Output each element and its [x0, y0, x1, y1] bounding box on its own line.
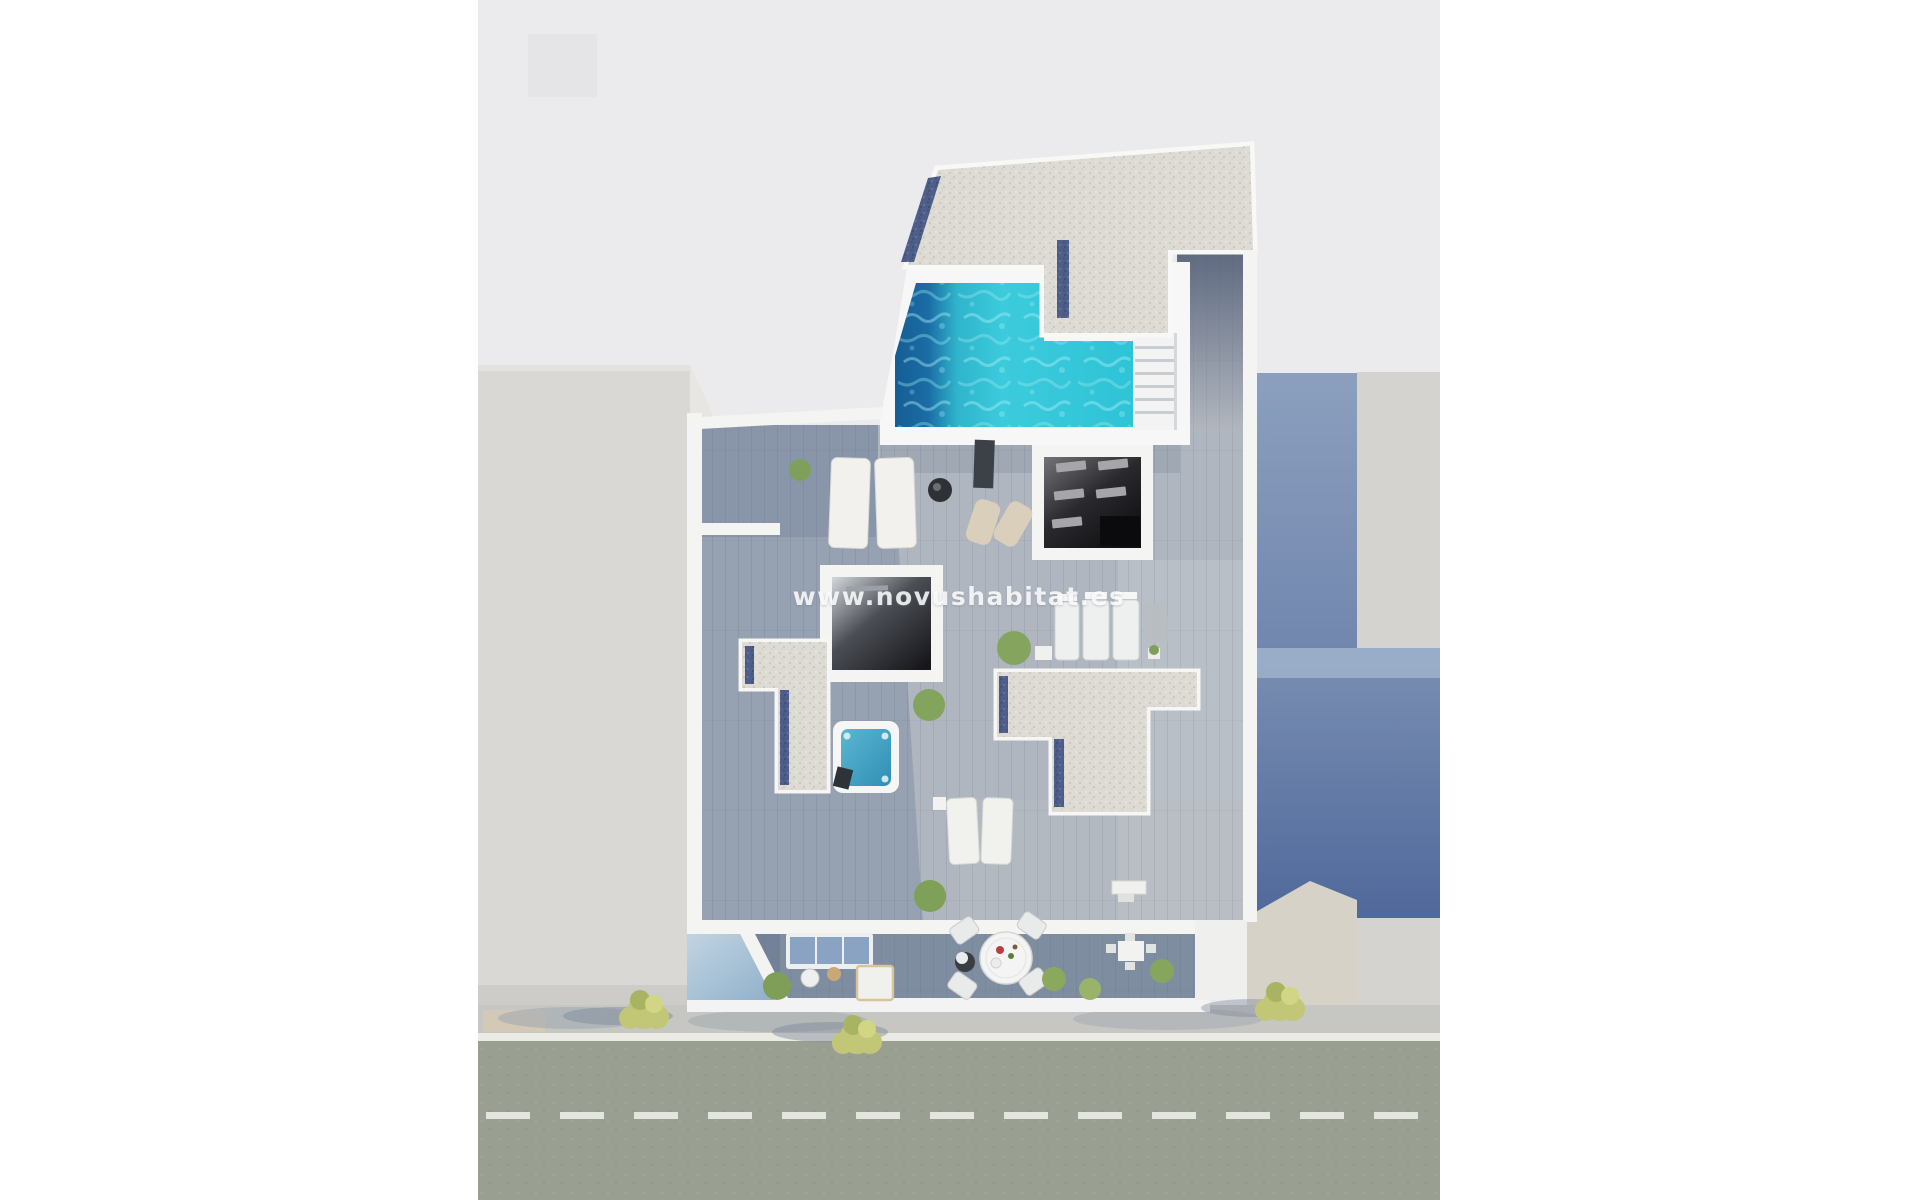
left-building-roof	[478, 365, 690, 1008]
side-table	[928, 478, 952, 502]
coffee-table	[801, 969, 819, 987]
side-table	[933, 797, 946, 810]
desk	[1112, 881, 1146, 894]
left-building-parapet	[478, 365, 690, 371]
plant	[1042, 967, 1066, 991]
ac-room	[1032, 445, 1153, 560]
plant	[997, 631, 1031, 665]
background-shape	[528, 34, 597, 97]
sun-lounger	[874, 457, 916, 548]
plant	[1079, 978, 1101, 1000]
jacuzzi	[833, 721, 899, 793]
dark-mat	[973, 440, 995, 489]
pebble-border	[1057, 240, 1069, 318]
desk-chair	[1118, 894, 1134, 902]
road-texture	[478, 1041, 1440, 1200]
watermark-text: www.novushabitat.es	[793, 582, 1126, 611]
right-building-blue-wall-lower	[1253, 648, 1440, 918]
curb-line	[478, 1033, 1440, 1041]
planter	[1035, 646, 1052, 660]
plant	[914, 880, 946, 912]
neighbor-building-right	[1247, 372, 1440, 1010]
right-wall	[1243, 250, 1257, 922]
right-building-blue-wall	[1253, 373, 1357, 648]
pool-stairs	[1133, 333, 1177, 430]
pebble-border	[1054, 739, 1064, 807]
sun-lounger	[828, 457, 870, 548]
plant	[1149, 645, 1159, 655]
basket-cloth	[956, 952, 968, 964]
ac-room-dark-corner	[1100, 516, 1140, 546]
sun-lounger	[946, 797, 979, 864]
deck-chair	[1143, 603, 1170, 643]
page-canvas: www.novushabitat.es	[0, 0, 1920, 1200]
plant	[763, 972, 791, 1000]
left-wall	[687, 413, 702, 934]
balcony-front-wall	[687, 998, 1210, 1012]
pebble-border	[999, 676, 1008, 733]
street	[478, 1005, 1440, 1200]
pebble-border	[745, 646, 754, 684]
side-table-highlight	[933, 483, 941, 491]
plant	[913, 689, 945, 721]
main-building	[687, 146, 1257, 1012]
plant	[789, 459, 811, 481]
sofa-cushions	[790, 937, 869, 964]
wall-ledge	[692, 523, 780, 535]
sun-lounger	[981, 797, 1013, 864]
plant	[1150, 959, 1174, 983]
coffee-table	[827, 967, 841, 981]
daybed	[857, 966, 893, 1000]
pebble-border	[780, 690, 789, 785]
small-table	[1118, 941, 1144, 961]
aerial-render-photo: www.novushabitat.es	[478, 0, 1440, 1200]
building-corner-block	[1195, 920, 1247, 1000]
right-building-light-band	[1253, 648, 1440, 678]
